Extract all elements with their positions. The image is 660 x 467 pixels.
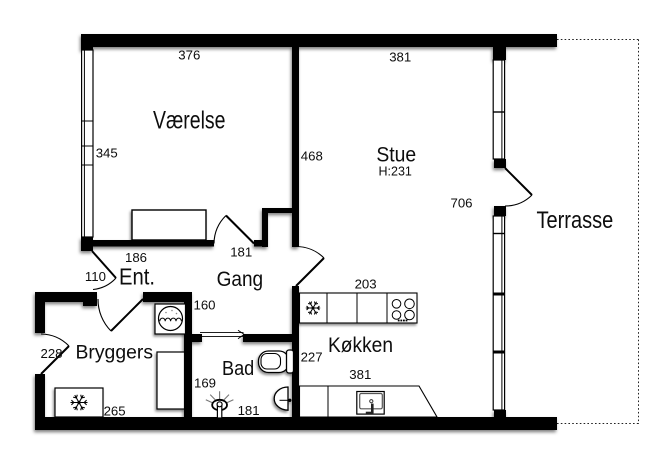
svg-text:181: 181 [230,245,252,260]
svg-text:181: 181 [238,403,260,418]
svg-text:Stue: Stue [376,144,416,167]
svg-text:110: 110 [85,269,106,284]
svg-text:169: 169 [194,376,216,391]
svg-text:Køkken: Køkken [328,334,393,357]
svg-text:706: 706 [450,196,472,211]
svg-text:381: 381 [349,367,371,382]
svg-text:Bad: Bad [222,358,254,380]
svg-text:186: 186 [125,250,147,265]
svg-text:381: 381 [389,50,411,65]
svg-text:Gang: Gang [217,268,264,291]
svg-text:345: 345 [96,146,118,161]
svg-text:160: 160 [193,298,215,313]
svg-text:Ent.: Ent. [119,264,155,290]
svg-text:376: 376 [178,48,200,63]
svg-text:228: 228 [40,346,62,361]
svg-text:H:231: H:231 [379,165,412,179]
svg-text:468: 468 [301,148,323,163]
svg-text:Terrasse: Terrasse [537,207,614,234]
svg-text:203: 203 [355,277,377,292]
svg-text:Bryggers: Bryggers [76,341,154,363]
svg-text:Værelse: Værelse [153,107,226,135]
svg-text:265: 265 [104,404,126,419]
svg-text:227: 227 [301,350,323,365]
